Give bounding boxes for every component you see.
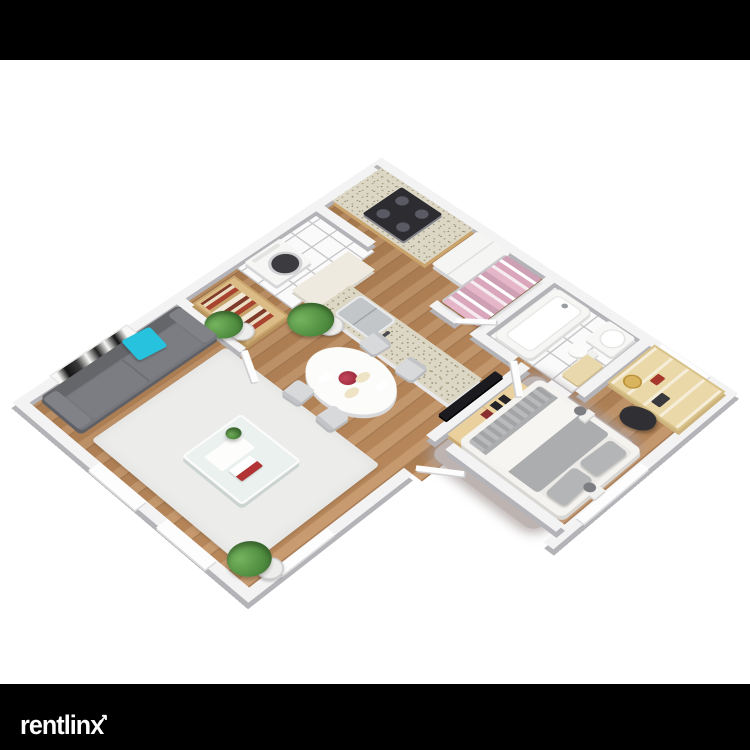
napkin <box>316 372 332 384</box>
napkin <box>374 380 390 392</box>
floor-plan-scene <box>0 60 750 684</box>
letterbox-bottom: rentlinx↗ <box>0 684 750 750</box>
page: { "watermark": { "brand": "rentlinx", "a… <box>0 0 750 750</box>
brand-watermark: rentlinx↗ <box>20 710 114 741</box>
sink-divider <box>352 308 377 326</box>
brand-text: rentlinx <box>20 710 103 740</box>
logo-arrow-icon: ↗ <box>97 710 108 728</box>
letterbox-top <box>0 0 750 60</box>
apartment-floor-plan <box>12 157 738 705</box>
clock-icon <box>619 372 646 392</box>
plate <box>353 370 373 385</box>
red-box <box>649 374 665 386</box>
dark-box <box>651 393 671 408</box>
plate <box>342 385 362 400</box>
